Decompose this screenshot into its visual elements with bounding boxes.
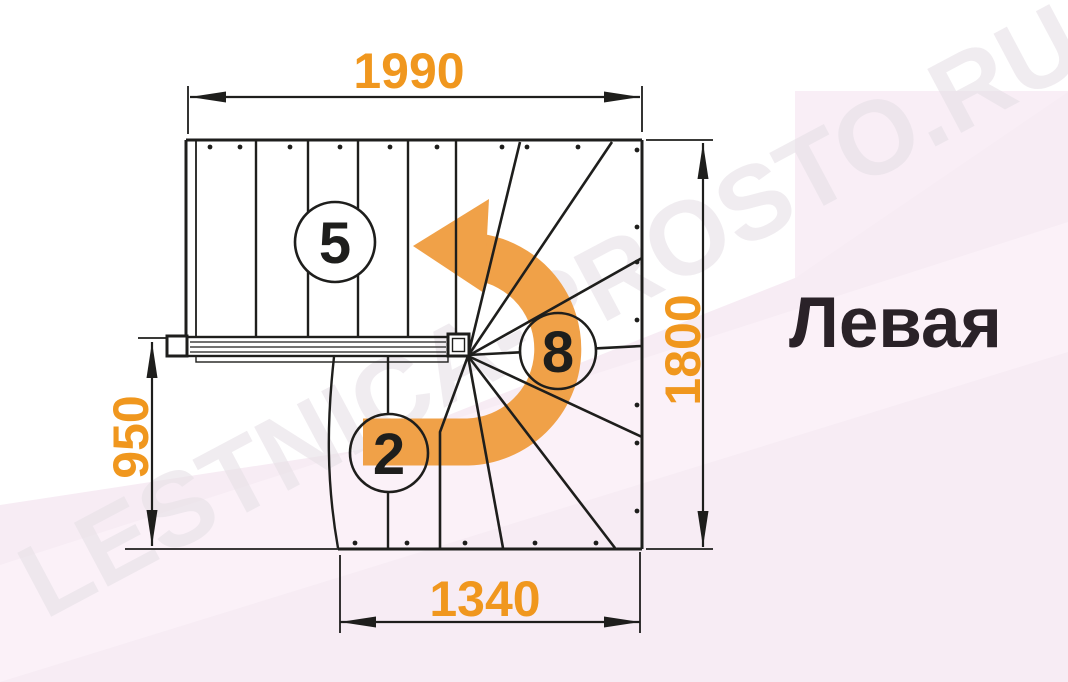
- step-count-upper-flight: 5: [319, 211, 351, 276]
- dimension-top-width: 1990: [353, 43, 464, 99]
- left-post: [167, 336, 187, 356]
- plan-canvas: LESTNICA-PROSTO.RU: [0, 0, 1068, 682]
- step-count-lower-flight: 2: [373, 422, 405, 487]
- dimension-right-height: 1800: [655, 294, 711, 405]
- orientation-label: Левая: [789, 284, 1002, 363]
- step-count-winder: 8: [542, 320, 574, 385]
- newel-post: [448, 334, 469, 356]
- dimension-bottom-width: 1340: [429, 571, 540, 627]
- dimension-left-height: 950: [103, 395, 159, 478]
- staircase-plan-drawing: LESTNICA-PROSTO.RU: [0, 0, 1068, 682]
